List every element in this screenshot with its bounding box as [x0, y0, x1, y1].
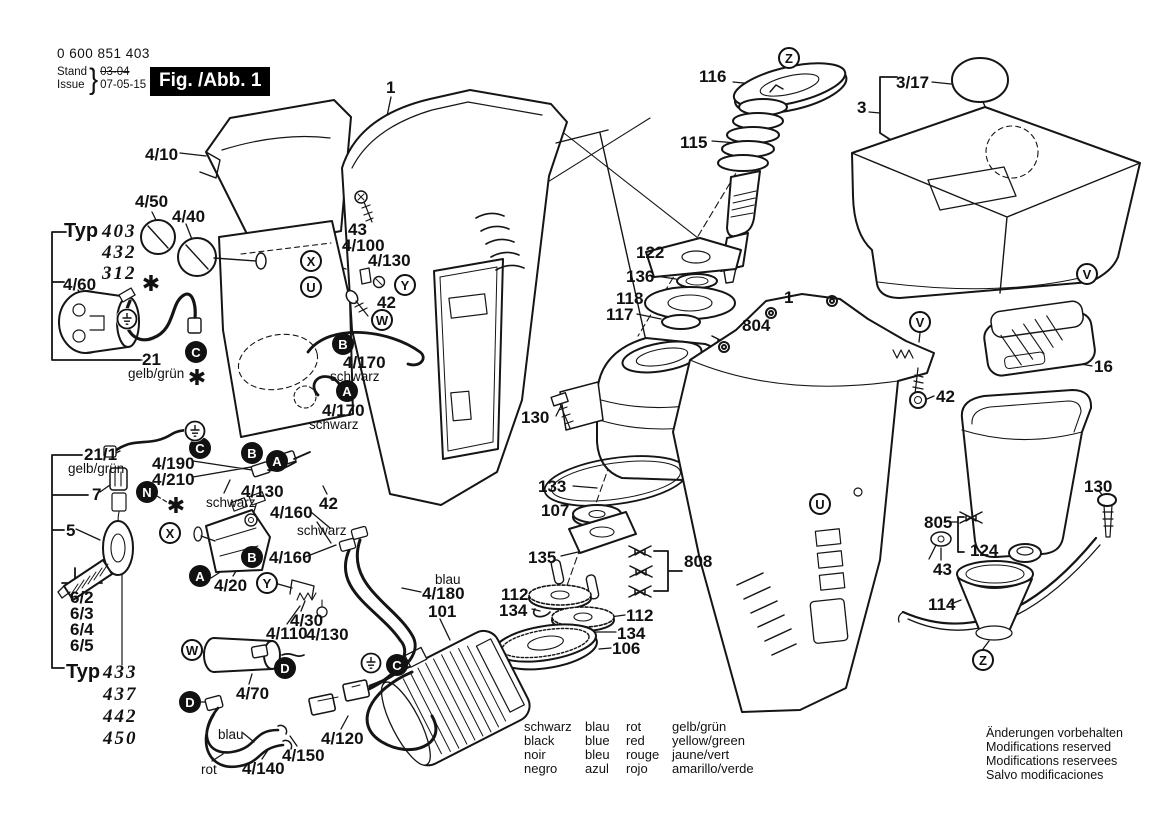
document-part-number: 0 600 851 403: [57, 46, 150, 61]
legend-cell: negro: [524, 762, 585, 776]
pin-4-100: [360, 268, 371, 284]
part-callout-1: 1: [386, 79, 395, 96]
part-callout-1: 1: [784, 289, 793, 306]
part-callout-136: 136: [626, 268, 654, 285]
type-value-450: 450: [103, 728, 138, 750]
part-callout-130: 130: [521, 409, 549, 426]
part-callout-134: 134: [499, 602, 527, 619]
type-group-label: Typ: [64, 220, 98, 243]
brace-glyph: }: [89, 72, 98, 86]
connectors-4-120: [309, 680, 370, 716]
type-value-442: 442: [103, 706, 138, 728]
part-callout-rot: rot: [201, 762, 217, 777]
part-callout-4-130: 4/130: [368, 252, 411, 269]
ref-marker-U: U: [809, 493, 831, 515]
type-value-312: 312: [102, 263, 137, 285]
ref-marker-N: N: [136, 481, 158, 503]
ref-marker-C: C: [185, 341, 207, 363]
part-callout-gelb-gr-n: gelb/grün: [128, 366, 184, 381]
legend-row: negroazulrojoamarillo/verde: [524, 762, 754, 776]
part-callout-blau: blau: [218, 727, 244, 742]
part-callout-43: 43: [933, 561, 952, 578]
part-callout-117: 117: [606, 306, 633, 323]
diagram-artwork: [0, 0, 1168, 826]
part-callout-101: 101: [428, 603, 456, 620]
legend-cell: bleu: [585, 748, 626, 762]
screw-4-130-top: [374, 277, 385, 288]
part-callout-schwarz: schwarz: [297, 523, 347, 538]
asterisk-icon: ✱: [188, 368, 206, 390]
ref-marker-W: W: [371, 309, 393, 331]
ring-124: [1009, 544, 1041, 562]
part-callout-4-40: 4/40: [172, 208, 205, 225]
part-callout-115: 115: [680, 134, 707, 151]
ref-marker-V: V: [1076, 263, 1098, 285]
ref-marker-Y: Y: [394, 274, 416, 296]
part-callout-4-140: 4/140: [242, 760, 285, 777]
part-callout-124: 124: [970, 542, 998, 559]
feed-chute-part: [962, 390, 1091, 557]
legend-cell: rouge: [626, 748, 672, 762]
washer-stack: [645, 274, 735, 329]
part-callout-133: 133: [538, 478, 566, 495]
part-callout-6-5: 6/5: [70, 637, 94, 654]
ref-marker-C: C: [386, 654, 408, 676]
legend-cell: blau: [585, 720, 626, 734]
part-callout-107: 107: [541, 502, 569, 519]
part-callout-130: 130: [1084, 478, 1112, 495]
asterisk-icon: ✱: [142, 274, 160, 296]
part-callout-gelb-gr-n: gelb/grün: [68, 461, 124, 476]
part-callout-4-180: 4/180: [422, 585, 465, 602]
type-value-432: 432: [102, 242, 137, 264]
part-callout-schwarz: schwarz: [309, 417, 359, 432]
ref-marker-B: B: [332, 333, 354, 355]
part-callout-4-120: 4/120: [321, 730, 364, 747]
ref-marker-A: A: [189, 565, 211, 587]
part-callout-schwarz: schwarz: [330, 369, 380, 384]
ref-marker-X: X: [159, 522, 181, 544]
part-callout-135: 135: [528, 549, 556, 566]
legend-cell: rot: [626, 720, 672, 734]
part-callout-805: 805: [924, 514, 952, 531]
ref-marker-A: A: [266, 450, 288, 472]
footer-line: Modifications reserved: [986, 740, 1123, 754]
footer-line: Änderungen vorbehalten: [986, 726, 1123, 740]
part-callout-4-150: 4/150: [282, 747, 325, 764]
issue-date: 07-05-15: [100, 79, 146, 91]
part-callout-16: 16: [1094, 358, 1113, 375]
part-callout-808: 808: [684, 553, 712, 570]
ref-marker-U: U: [300, 276, 322, 298]
legend-cell: black: [524, 734, 585, 748]
part-callout-114: 114: [928, 596, 955, 613]
ref-marker-Y: Y: [256, 572, 278, 594]
ref-marker-D: D: [274, 657, 296, 679]
legend-row: noirbleurougejaune/vert: [524, 748, 754, 762]
ref-marker-A: A: [336, 380, 358, 402]
modifications-note: Änderungen vorbehaltenModifications rese…: [986, 726, 1123, 782]
legend-cell: gelb/grün: [672, 720, 726, 734]
parts-diagram-page: 0 600 851 403 Stand Issue } 03-04 07-05-…: [0, 0, 1168, 826]
part-callout-112: 112: [626, 607, 653, 624]
part-callout-4-110: 4/110: [266, 625, 308, 642]
ref-marker-Z: Z: [972, 649, 994, 671]
part-callout-4-160: 4/160: [270, 504, 313, 521]
pusher-part: [981, 299, 1097, 377]
ref-marker-W: W: [181, 639, 203, 661]
part-callout-4-130: 4/130: [241, 483, 284, 500]
part-callout-4-210: 4/210: [152, 471, 195, 488]
legend-row: blackblueredyellow/green: [524, 734, 754, 748]
ref-marker-V: V: [909, 311, 931, 333]
wire-color-legend: schwarzblaurotgelb/grünblackblueredyello…: [524, 720, 754, 776]
footer-line: Salvo modificaciones: [986, 768, 1123, 782]
legend-cell: blue: [585, 734, 626, 748]
ref-marker-B: B: [241, 442, 263, 464]
legend-cell: jaune/vert: [672, 748, 729, 762]
right-housing-part: [673, 294, 934, 712]
hopper-cover-part: [852, 58, 1140, 298]
footer-line: Modifications reservees: [986, 754, 1123, 768]
part-callout-4-60: 4/60: [63, 276, 96, 293]
ref-marker-B: B: [241, 546, 263, 568]
part-callout-42: 42: [319, 495, 338, 512]
part-callout-4-50: 4/50: [135, 193, 168, 210]
earth-ground-icon: [360, 652, 382, 674]
legend-cell: rojo: [626, 762, 672, 776]
part-callout-3: 3: [857, 99, 866, 116]
part-callout-4-70: 4/70: [236, 685, 269, 702]
part-callout-7: 7: [92, 486, 101, 503]
legend-cell: schwarz: [524, 720, 585, 734]
stand-label: Stand: [57, 66, 87, 78]
funnel-part: [957, 561, 1033, 640]
part-callout-804: 804: [742, 317, 770, 334]
ref-marker-D: D: [179, 691, 201, 713]
part-callout-4-20: 4/20: [214, 577, 247, 594]
part-callout-3-17: 3/17: [896, 74, 929, 91]
deleted-part-808: [629, 546, 652, 597]
part-callout-4-10: 4/10: [145, 146, 178, 163]
type-value-403: 403: [102, 221, 137, 243]
type-group-label: Typ: [66, 661, 100, 684]
issue-label: Issue: [57, 79, 85, 91]
legend-cell: red: [626, 734, 672, 748]
ref-marker-X: X: [300, 250, 322, 272]
screw-43-right: [929, 532, 951, 559]
ref-marker-Z: Z: [778, 47, 800, 69]
part-callout-42: 42: [936, 388, 955, 405]
legend-cell: yellow/green: [672, 734, 745, 748]
earth-ground-icon: [116, 308, 138, 330]
part-callout-4-130: 4/130: [306, 626, 349, 643]
asterisk-icon: ✱: [167, 496, 185, 518]
legend-row: schwarzblaurotgelb/grün: [524, 720, 754, 734]
bolt-130-right: [1098, 494, 1116, 537]
type-value-437: 437: [103, 684, 138, 706]
revision-block: Stand Issue } 03-04 07-05-15: [57, 66, 146, 92]
washer-4-130: [245, 514, 257, 526]
part-callout-4-160: 4/160: [269, 549, 312, 566]
legend-cell: amarillo/verde: [672, 762, 754, 776]
part-callout-5: 5: [66, 522, 75, 539]
legend-cell: noir: [524, 748, 585, 762]
legend-cell: azul: [585, 762, 626, 776]
part-callout-106: 106: [612, 640, 640, 657]
part-callout-122: 122: [636, 244, 664, 261]
type-value-433: 433: [103, 662, 138, 684]
superseded-date: 03-04: [100, 66, 129, 78]
earth-ground-icon: [184, 420, 206, 442]
figure-label: Fig. /Abb. 1: [150, 67, 270, 96]
part-callout-116: 116: [699, 68, 726, 85]
